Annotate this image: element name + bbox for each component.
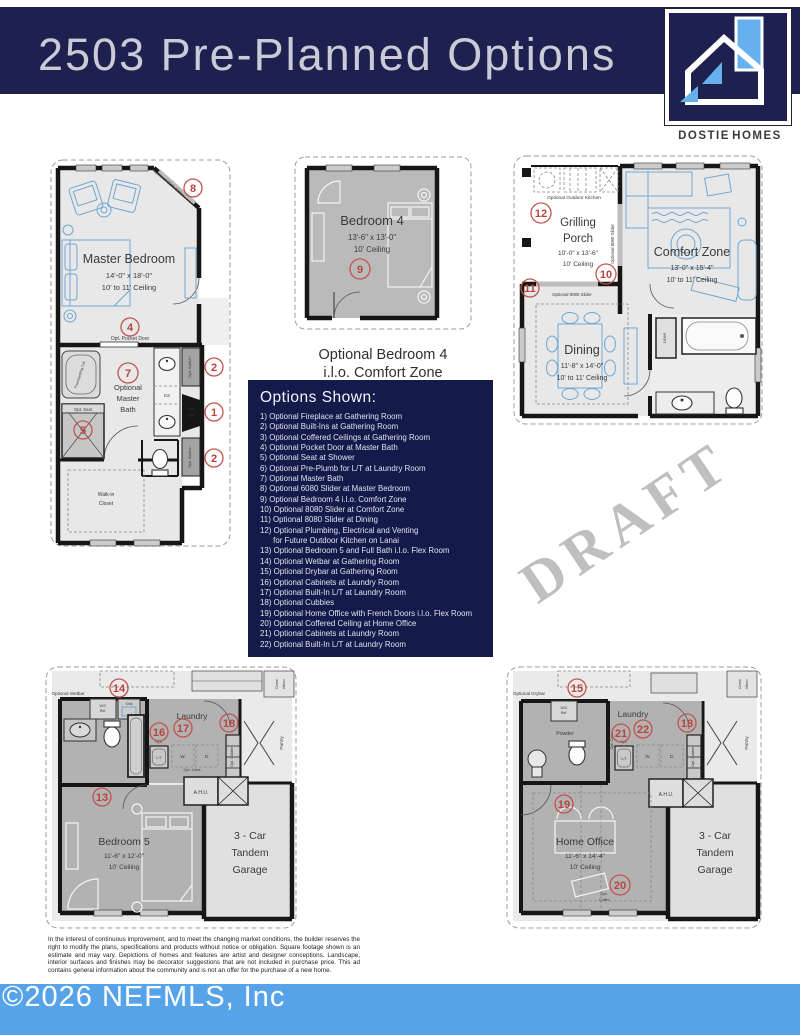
room-name: Master Bedroom [83,252,175,266]
option-item: 11) Optional 8080 Slider at Dining [260,515,487,525]
option-item: 20) Optional Coffered Ceiling at Home Of… [260,619,487,629]
svg-text:12: 12 [535,208,547,220]
room-name: Bedroom 5 [98,836,150,848]
room-dims: 13'-6" x 13'-0" [348,233,396,242]
svg-text:Optional: Optional [114,383,142,392]
home-office-laundry-floor-plan: Optional Drybar W/C Ref. Powder Laundry … [503,663,768,932]
svg-text:Coffer: Coffer [599,898,610,902]
brand-name-secondary: HOMES [732,130,782,142]
svg-text:D.: D. [670,754,675,759]
option-item: 6) Optional Pre-Plumb for L/T at Laundry… [260,464,487,474]
svg-text:10' Ceiling: 10' Ceiling [570,864,601,871]
svg-text:Oven/: Oven/ [738,678,742,689]
svg-text:2: 2 [211,453,217,465]
svg-text:W.: W. [180,754,185,759]
svg-text:Garage: Garage [232,864,267,876]
option-item: for Future Outdoor Kitchen on Lanai [260,536,487,546]
svg-text:10: 10 [600,269,612,281]
svg-text:Opt. Cubbie: Opt. Cubbie [691,747,695,767]
room-fill [307,168,437,318]
page: 2503 Pre-Planned Options DOSTIE HOMES [0,0,800,1035]
svg-text:Opt. Built-In: Opt. Built-In [187,446,192,467]
svg-text:Opt. Cubbie: Opt. Cubbie [230,747,234,767]
option-item: 22) Optional Built-In L/T at Laundry Roo… [260,640,487,650]
svg-text:Master: Master [117,394,140,403]
bedroom5-laundry-floor-plan: Optional Wetbar W/C Ref. Sink Laundry Op… [42,663,300,932]
svg-text:11'-6" x 12'-0": 11'-6" x 12'-0" [104,853,145,860]
option-item: 16) Optional Cabinets at Laundry Room [260,578,487,588]
wetbar-label: Optional Wetbar [51,691,85,696]
svg-text:4: 4 [127,322,134,334]
svg-text:Opt. Built-In: Opt. Built-In [187,356,192,377]
options-title: Options Shown: [260,389,487,407]
svg-text:Porch: Porch [563,233,593,245]
brand-name-primary: DOSTIE [678,130,730,142]
slider-v-label: Optional 8080 Slider [610,224,615,264]
room-name: Bedroom 4 [340,213,404,228]
option-item: 19) Optional Home Office with French Doo… [260,609,487,619]
option-item: 8) Optional 6080 Slider at Master Bedroo… [260,484,487,494]
svg-text:19: 19 [558,799,570,811]
linen-label: Linen [662,332,667,343]
bedroom4-floor-plan: Bedroom 4 13'-6" x 13'-0" 10' Ceiling 9 [288,155,478,347]
svg-text:W/C: W/C [100,704,107,708]
svg-text:Walk-in: Walk-in [98,492,115,498]
svg-text:W.: W. [645,754,650,759]
option-item: 21) Optional Cabinets at Laundry Room [260,629,487,639]
svg-text:Tandem: Tandem [231,847,269,859]
page-title: 2503 Pre-Planned Options [38,29,616,81]
svg-text:Ref.: Ref. [100,709,107,713]
svg-text:13'-0" x 15'-4": 13'-0" x 15'-4" [670,265,714,272]
svg-text:Oven/: Oven/ [275,678,279,689]
garage-label: 3 - Car [699,830,732,842]
svg-text:Opt. Cabs: Opt. Cabs [183,768,200,772]
svg-text:18: 18 [681,718,693,730]
slider-h-label: Optional 8080 Slider [552,292,592,297]
fireplace-icon [182,394,200,432]
svg-text:Micro: Micro [282,679,286,688]
svg-text:15: 15 [571,683,583,695]
option-item: 9) Optional Bedroom 4 i.l.o. Comfort Zon… [260,495,487,505]
svg-text:Opt.: Opt. [600,892,607,896]
copyright-text: ©2026 NEFMLS, Inc [2,981,285,1014]
comfort-zone-floor-plan: Optional Outdoor Kitchen Grilling Porch … [510,152,768,428]
svg-text:21: 21 [615,728,627,740]
option-item: 14) Optional Wetbar at Gathering Room [260,557,487,567]
svg-text:F/P: F/P [188,414,194,418]
pedestal-sink-icon [528,750,546,768]
outdoor-kitchen [534,168,618,192]
option-item: 2) Optional Built-Ins at Gathering Room [260,422,487,432]
option-item: 12) Optional Plumbing, Electrical and Ve… [260,526,487,536]
svg-text:10'-0" x 13'-6": 10'-0" x 13'-6" [558,250,599,257]
option-item: 4) Optional Pocket Door at Master Bath [260,443,487,453]
svg-text:A.H.U.: A.H.U. [194,790,209,796]
powder-label: Powder [556,731,574,737]
option-item: 15) Optional Drybar at Gathering Room [260,567,487,577]
knee-space-label: KS [164,393,170,398]
room-ceiling: 10' to 11' Ceiling [102,283,156,292]
option-item: 10) Optional 8080 Slider at Comfort Zone [260,505,487,515]
svg-text:1: 1 [211,407,217,419]
svg-text:Pantry: Pantry [279,736,284,750]
svg-text:10' Ceiling: 10' Ceiling [563,261,594,268]
toilet-icon [726,388,742,408]
svg-text:11'-8" x 14'-0": 11'-8" x 14'-0" [561,363,604,370]
pocket-door-label: Opt. Pocket Door [111,336,150,342]
svg-text:Bath: Bath [120,405,135,414]
toilet-icon [104,727,120,747]
svg-text:A.H.U.: A.H.U. [659,792,674,798]
svg-text:Ref.: Ref. [561,711,568,715]
option-item: 3) Optional Coffered Ceilings at Gatheri… [260,433,487,443]
svg-text:10' to 11' Ceiling: 10' to 11' Ceiling [667,277,718,284]
dining-name: Dining [564,343,599,357]
oven-micro-icon [727,671,757,697]
svg-text:Pantry: Pantry [744,736,749,750]
svg-text:Micro: Micro [745,679,749,688]
svg-text:5: 5 [80,425,86,437]
bedroom4-caption: Optional Bedroom 4 i.l.o. Comfort Zone [283,347,483,382]
svg-text:2: 2 [211,362,217,374]
svg-text:20: 20 [614,880,626,892]
room-dims: 14'-0" x 18'-0" [106,271,152,280]
seat-label: Opt. Seat [74,407,93,412]
zone-name: Comfort Zone [654,245,730,259]
room-name: Home Office [556,836,614,848]
svg-text:L/T: L/T [156,756,162,760]
svg-text:Opt.: Opt. [187,407,194,411]
laundry-label: Laundry [618,709,649,719]
disclaimer-text: In the interest of continuous improvemen… [48,936,360,975]
oven-micro-icon [264,671,294,697]
svg-text:Sink: Sink [126,702,133,706]
toilet-icon [569,745,585,765]
svg-text:W/C: W/C [561,706,568,710]
garage-label: 3 - Car [234,830,267,842]
svg-text:9: 9 [357,264,363,276]
footer-bar: ©2026 NEFMLS, Inc [0,984,800,1035]
master-suite-floor-plan: Master Bedroom 14'-0" x 18'-0" 10' to 11… [42,158,237,548]
outdoor-kitchen-label: Optional Outdoor Kitchen [547,195,601,201]
option-item: 5) Optional Seat at Shower [260,453,487,463]
option-item: 17) Optional Built-In L/T at Laundry Roo… [260,588,487,598]
svg-text:10' Ceiling: 10' Ceiling [109,864,140,871]
svg-text:16: 16 [153,727,165,739]
svg-text:17: 17 [177,723,189,735]
svg-text:13: 13 [96,792,108,804]
svg-text:11: 11 [524,283,536,295]
svg-text:8: 8 [190,183,196,195]
drybar-label: Optional Drybar [513,691,546,696]
room-ceiling: 10' Ceiling [354,245,390,254]
svg-text:22: 22 [637,724,649,736]
dostie-homes-logo: DOSTIE HOMES [664,8,792,144]
options-panel: Options Shown: 1) Optional Fireplace at … [248,380,493,657]
svg-text:10' to 11' Ceiling: 10' to 11' Ceiling [557,375,608,382]
svg-text:D.: D. [205,754,210,759]
option-item: 18) Optional Cubbies [260,598,487,608]
svg-text:14: 14 [113,683,126,695]
svg-text:11'-6" x 14'-4": 11'-6" x 14'-4" [565,853,606,860]
svg-text:18: 18 [223,718,235,730]
svg-text:Grilling: Grilling [560,217,596,229]
toilet-icon [153,450,168,469]
option-item: 1) Optional Fireplace at Gathering Room [260,412,487,422]
draft-watermark: DRAFT [511,431,742,613]
svg-text:Tandem: Tandem [696,847,734,859]
option-item: 7) Optional Master Bath [260,474,487,484]
svg-text:L/T: L/T [621,757,627,761]
option-item: 13) Optional Bedroom 5 and Full Bath i.l… [260,546,487,556]
svg-text:7: 7 [125,368,131,380]
svg-text:Garage: Garage [697,864,732,876]
svg-text:Closet: Closet [99,501,114,507]
